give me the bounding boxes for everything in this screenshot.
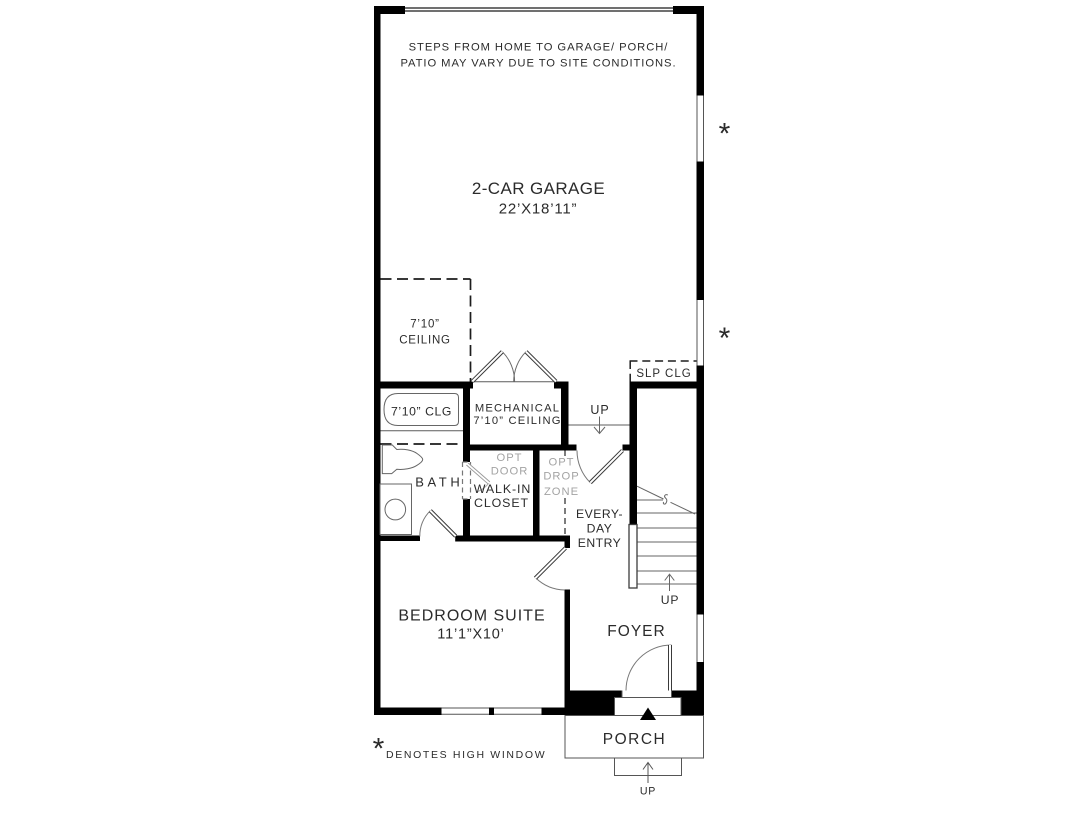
svg-text:*: * [719, 322, 731, 355]
svg-text:SLP CLG: SLP CLG [636, 368, 691, 380]
svg-text:DOOR: DOOR [491, 466, 529, 478]
svg-text:ENTRY: ENTRY [578, 536, 622, 550]
svg-text:*: * [719, 118, 731, 151]
svg-text:BATH: BATH [415, 474, 463, 489]
svg-text:PATIO MAY VARY DUE TO SITE CON: PATIO MAY VARY DUE TO SITE CONDITIONS. [400, 57, 676, 69]
svg-text:STEPS FROM HOME TO GARAGE/ POR: STEPS FROM HOME TO GARAGE/ PORCH/ [409, 42, 669, 54]
svg-text:CLOSET: CLOSET [474, 496, 529, 510]
svg-text:EVERY-: EVERY- [576, 507, 623, 521]
svg-text:CEILING: CEILING [399, 335, 451, 347]
svg-text:UP: UP [590, 403, 609, 417]
svg-text:7’10”: 7’10” [410, 319, 440, 331]
svg-text:PORCH: PORCH [603, 731, 666, 748]
svg-text:BEDROOM SUITE: BEDROOM SUITE [398, 607, 545, 624]
svg-text:7’10” CLG: 7’10” CLG [391, 405, 452, 419]
svg-text:2-CAR GARAGE: 2-CAR GARAGE [472, 179, 605, 198]
svg-text:ZONE: ZONE [544, 486, 579, 498]
svg-text:UP: UP [640, 786, 656, 798]
svg-text:22’X18’11”: 22’X18’11” [499, 201, 578, 218]
svg-text:DAY: DAY [587, 521, 613, 535]
svg-text:OPT: OPT [549, 456, 575, 468]
svg-text:11’1”X10’: 11’1”X10’ [437, 627, 504, 643]
svg-text:OPT: OPT [497, 452, 523, 464]
svg-text:7’10” CEILING: 7’10” CEILING [473, 415, 561, 427]
svg-text:MECHANICAL: MECHANICAL [475, 403, 560, 415]
svg-text:*: * [373, 733, 385, 766]
svg-text:UP: UP [661, 593, 680, 607]
svg-text:DROP: DROP [543, 471, 579, 483]
svg-text:DENOTES HIGH WINDOW: DENOTES HIGH WINDOW [386, 749, 546, 761]
svg-text:WALK-IN: WALK-IN [474, 482, 531, 496]
svg-text:FOYER: FOYER [607, 623, 665, 640]
